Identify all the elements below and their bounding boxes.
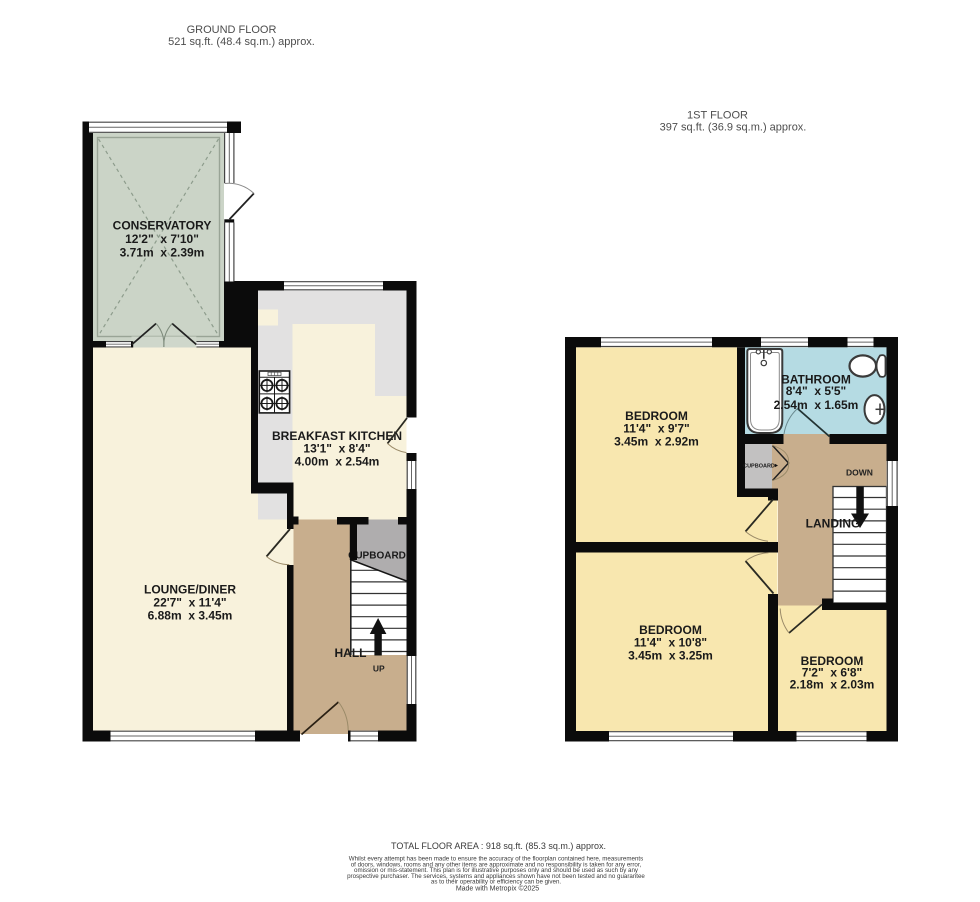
- svg-text:11'4" x 9'7": 11'4" x 9'7": [623, 422, 689, 436]
- svg-text:HALL: HALL: [335, 646, 367, 660]
- svg-text:2.54m x 1.65m: 2.54m x 1.65m: [774, 398, 859, 412]
- svg-text:3.45m x 3.25m: 3.45m x 3.25m: [628, 649, 713, 663]
- svg-text:521 sq.ft. (48.4 sq.m.) approx: 521 sq.ft. (48.4 sq.m.) approx.: [168, 36, 315, 48]
- svg-text:LOUNGE/DINER: LOUNGE/DINER: [144, 583, 236, 597]
- svg-text:12'2" x 7'10": 12'2" x 7'10": [125, 232, 199, 246]
- svg-text:GROUND FLOOR: GROUND FLOOR: [187, 24, 277, 36]
- svg-text:22'7" x 11'4": 22'7" x 11'4": [153, 596, 226, 610]
- svg-text:13'1" x 8'4": 13'1" x 8'4": [303, 442, 370, 456]
- svg-text:UP: UP: [373, 664, 385, 674]
- svg-text:Made with Metropix ©2025: Made with Metropix ©2025: [456, 885, 539, 893]
- svg-text:LANDING: LANDING: [806, 517, 861, 531]
- svg-text:CONSERVATORY: CONSERVATORY: [113, 219, 212, 233]
- svg-text:3.71m x 2.39m: 3.71m x 2.39m: [120, 246, 205, 260]
- svg-text:CUPBOARD: CUPBOARD: [743, 464, 775, 470]
- svg-text:397 sq.ft. (36.9 sq.m.) approx: 397 sq.ft. (36.9 sq.m.) approx.: [660, 122, 807, 134]
- svg-text:DOWN: DOWN: [846, 468, 873, 478]
- svg-text:8'4" x 5'5": 8'4" x 5'5": [786, 384, 846, 398]
- svg-text:1ST FLOOR: 1ST FLOOR: [687, 110, 748, 122]
- svg-text:2.18m x 2.03m: 2.18m x 2.03m: [790, 678, 875, 692]
- svg-text:4.00m x 2.54m: 4.00m x 2.54m: [295, 455, 380, 469]
- svg-text:11'4" x 10'8": 11'4" x 10'8": [634, 636, 707, 650]
- svg-text:TOTAL FLOOR AREA : 918 sq.ft.: TOTAL FLOOR AREA : 918 sq.ft. (85.3 sq.m…: [391, 841, 606, 851]
- svg-text:3.45m x 2.92m: 3.45m x 2.92m: [614, 435, 699, 449]
- svg-text:6.88m x 3.45m: 6.88m x 3.45m: [148, 609, 233, 623]
